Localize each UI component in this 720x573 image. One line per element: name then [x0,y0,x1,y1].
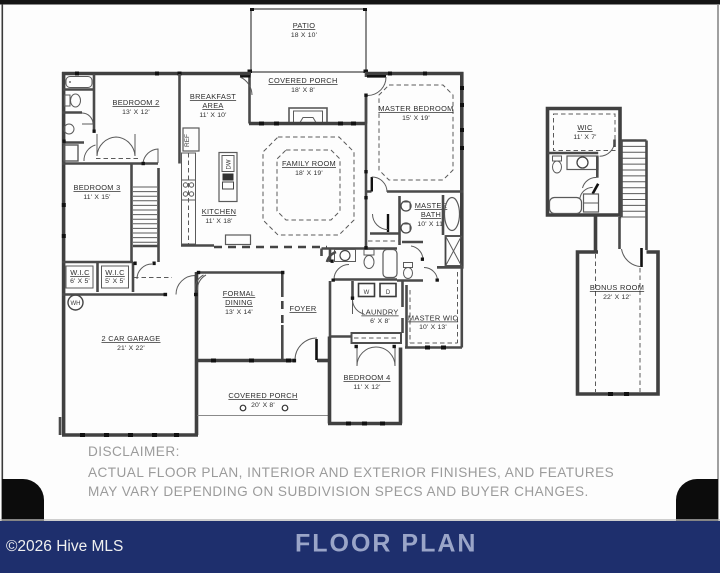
svg-text:WH: WH [71,301,81,307]
svg-text:FLOOR PLAN: FLOOR PLAN [295,530,478,558]
svg-text:REF: REF [184,134,191,147]
svg-text:PATIO: PATIO [293,21,316,30]
svg-text:DISCLAIMER:: DISCLAIMER: [88,444,180,459]
svg-text:ACTUAL FLOOR PLAN, INTERIOR AN: ACTUAL FLOOR PLAN, INTERIOR AND EXTERIOR… [88,465,614,480]
svg-text:BREAKFAST: BREAKFAST [190,92,236,101]
svg-text:W.I.C: W.I.C [105,268,125,277]
svg-text:2 CAR GARAGE: 2 CAR GARAGE [101,334,160,343]
svg-text:11' X 12': 11' X 12' [353,384,380,391]
svg-text:10' X 11': 10' X 11' [417,221,444,228]
svg-text:FORMAL: FORMAL [223,289,256,298]
svg-text:W.I.C: W.I.C [70,268,90,277]
svg-text:BEDROOM 2: BEDROOM 2 [112,98,159,107]
svg-text:BEDROOM 3: BEDROOM 3 [73,183,120,192]
svg-text:FAMILY ROOM: FAMILY ROOM [282,159,336,168]
svg-text:MASTER BEDROOM: MASTER BEDROOM [378,104,453,113]
svg-text:11' X 15': 11' X 15' [83,194,110,201]
svg-text:13' X 12': 13' X 12' [122,109,150,116]
svg-text:COVERED PORCH: COVERED PORCH [268,76,337,85]
svg-text:DW: DW [227,159,233,169]
svg-text:D: D [386,290,391,296]
svg-text:18 X 10': 18 X 10' [291,32,317,39]
svg-text:18' X 19': 18' X 19' [295,170,323,177]
svg-text:6' X 8': 6' X 8' [370,318,390,325]
svg-text:COVERED PORCH: COVERED PORCH [228,391,297,400]
svg-text:DINING: DINING [225,298,253,307]
svg-text:11' X 7': 11' X 7' [573,134,596,141]
svg-text:BATH: BATH [421,210,441,219]
svg-text:KITCHEN: KITCHEN [202,207,237,216]
svg-text:WIC: WIC [577,123,593,132]
svg-text:5' X 5': 5' X 5' [105,278,125,285]
svg-text:©2026 Hive MLS: ©2026 Hive MLS [6,538,123,555]
svg-text:FOYER: FOYER [290,304,317,313]
svg-text:20' X 8': 20' X 8' [251,402,275,409]
svg-text:11' X 18': 11' X 18' [205,218,232,225]
svg-text:13' X 14': 13' X 14' [225,309,253,316]
svg-text:LAUNDRY: LAUNDRY [361,308,398,317]
svg-text:18' X 8': 18' X 8' [291,87,315,94]
svg-text:W: W [364,290,370,296]
svg-text:21' X 22': 21' X 22' [117,345,145,352]
svg-text:BONUS ROOM: BONUS ROOM [590,283,644,292]
svg-text:11' X 10': 11' X 10' [199,112,226,119]
svg-text:BEDROOM 4: BEDROOM 4 [343,373,390,382]
svg-text:MAY VARY DEPENDING ON SUBDIVIS: MAY VARY DEPENDING ON SUBDIVISION SPECS … [88,484,589,499]
svg-text:AREA: AREA [202,101,223,110]
svg-text:6' X 5': 6' X 5' [70,278,90,285]
svg-text:10' X 13': 10' X 13' [419,324,447,331]
svg-text:MASTER WIC: MASTER WIC [408,314,459,323]
svg-text:15' X 19': 15' X 19' [402,115,430,122]
svg-text:22' X 12': 22' X 12' [603,294,631,301]
